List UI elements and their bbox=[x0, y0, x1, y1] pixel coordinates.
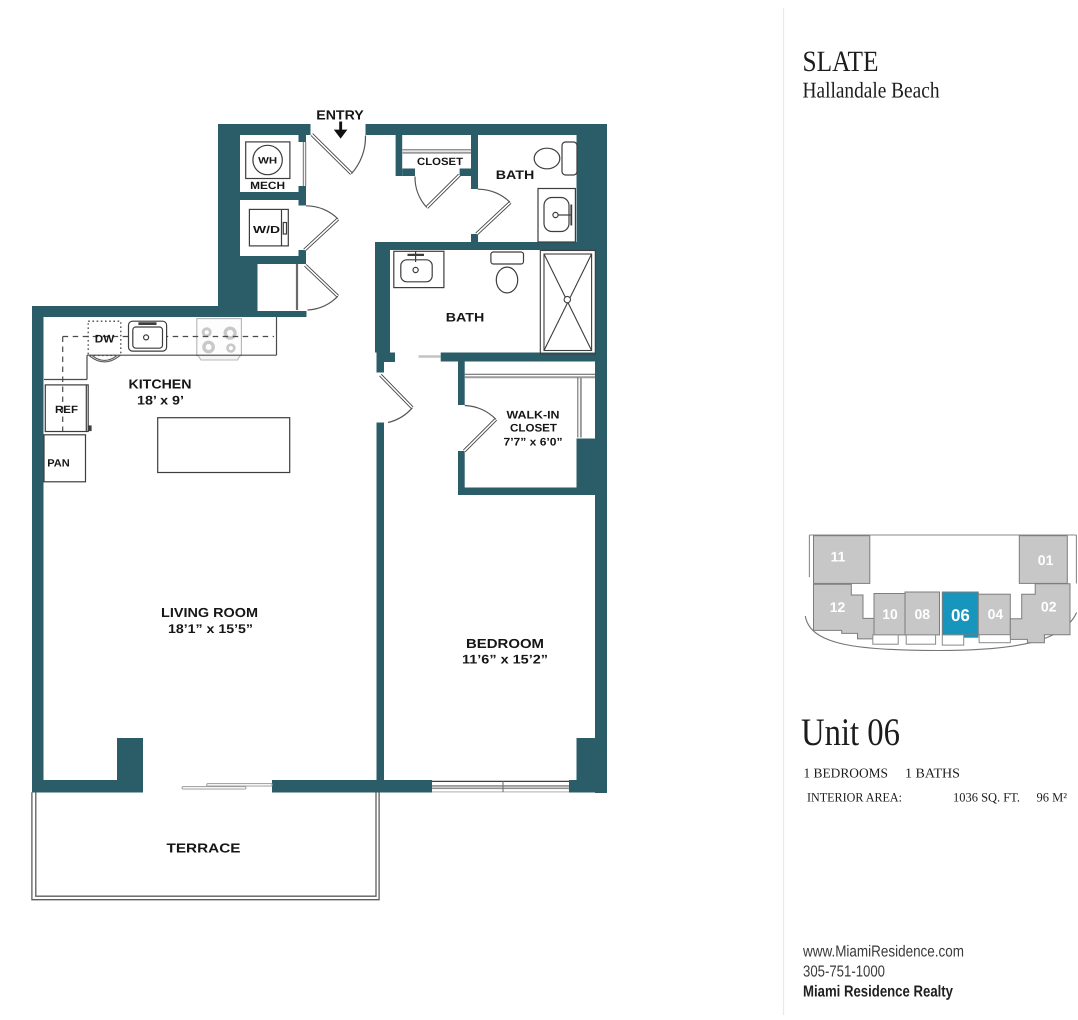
svg-text:7’7” x 6’0”: 7’7” x 6’0” bbox=[504, 436, 563, 448]
svg-text:18’ x 9’: 18’ x 9’ bbox=[137, 393, 184, 407]
svg-text:DW: DW bbox=[95, 334, 115, 346]
svg-text:08: 08 bbox=[915, 606, 931, 622]
svg-text:BATH: BATH bbox=[446, 310, 485, 324]
svg-text:11: 11 bbox=[831, 549, 846, 565]
svg-text:Miami Residence Realty: Miami Residence Realty bbox=[803, 984, 953, 1001]
svg-text:06: 06 bbox=[951, 606, 970, 625]
svg-text:1 BATHS: 1 BATHS bbox=[905, 766, 960, 781]
svg-text:W/D: W/D bbox=[253, 225, 280, 236]
svg-text:11’6” x 15’2”: 11’6” x 15’2” bbox=[462, 652, 548, 666]
svg-text:www.MiamiResidence.com: www.MiamiResidence.com bbox=[802, 944, 964, 961]
svg-text:BATH: BATH bbox=[496, 168, 535, 182]
svg-text:12: 12 bbox=[830, 599, 846, 615]
svg-text:01: 01 bbox=[1038, 552, 1054, 568]
svg-text:KITCHEN: KITCHEN bbox=[129, 376, 192, 391]
svg-text:CLOSET: CLOSET bbox=[510, 423, 557, 435]
svg-text:SLATE: SLATE bbox=[803, 46, 879, 78]
svg-text:ENTRY: ENTRY bbox=[316, 108, 364, 123]
svg-text:BEDROOM: BEDROOM bbox=[466, 636, 544, 651]
svg-text:WALK-IN: WALK-IN bbox=[507, 410, 560, 422]
svg-text:305-751-1000: 305-751-1000 bbox=[803, 964, 885, 981]
svg-text:REF: REF bbox=[55, 404, 79, 416]
svg-text:1036 SQ. FT.: 1036 SQ. FT. bbox=[953, 791, 1020, 805]
svg-text:04: 04 bbox=[988, 606, 1004, 622]
svg-text:LIVING ROOM: LIVING ROOM bbox=[161, 605, 258, 620]
svg-text:MECH: MECH bbox=[250, 180, 285, 192]
svg-text:WH: WH bbox=[258, 156, 277, 166]
svg-text:CLOSET: CLOSET bbox=[417, 156, 464, 168]
svg-text:1 BEDROOMS: 1 BEDROOMS bbox=[804, 766, 889, 781]
svg-text:Hallandale Beach: Hallandale Beach bbox=[803, 77, 940, 102]
svg-text:02: 02 bbox=[1041, 599, 1057, 615]
svg-text:96 M²: 96 M² bbox=[1037, 791, 1068, 805]
svg-text:Unit 06: Unit 06 bbox=[801, 711, 900, 754]
svg-text:18’1” x 15’5”: 18’1” x 15’5” bbox=[168, 622, 253, 636]
svg-text:INTERIOR AREA:: INTERIOR AREA: bbox=[807, 791, 902, 805]
svg-text:PAN: PAN bbox=[47, 458, 70, 470]
svg-text:TERRACE: TERRACE bbox=[167, 841, 241, 856]
svg-text:10: 10 bbox=[882, 606, 898, 622]
